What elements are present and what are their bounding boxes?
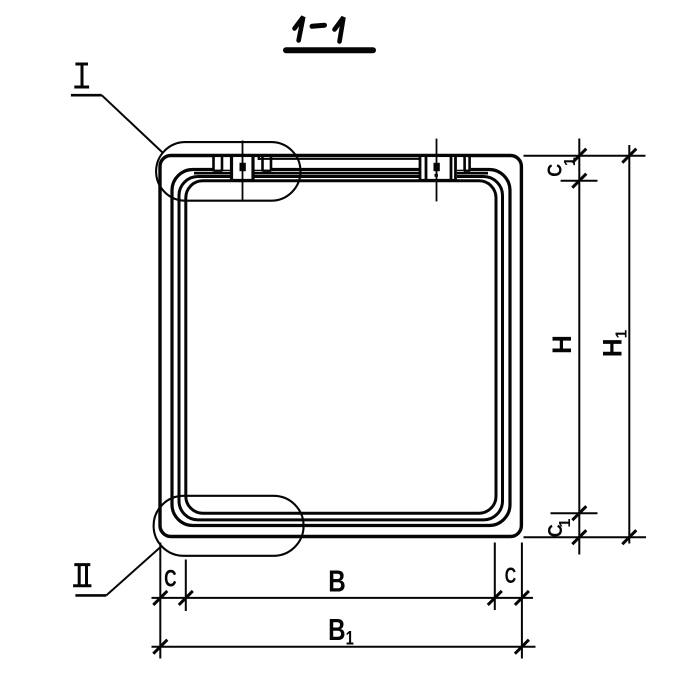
svg-text:1: 1 (557, 518, 574, 527)
svg-text:B: B (328, 564, 345, 599)
svg-text:H: H (547, 335, 577, 354)
svg-text:1: 1 (562, 157, 579, 166)
svg-text:C: C (505, 565, 517, 589)
svg-text:C: C (164, 566, 176, 592)
